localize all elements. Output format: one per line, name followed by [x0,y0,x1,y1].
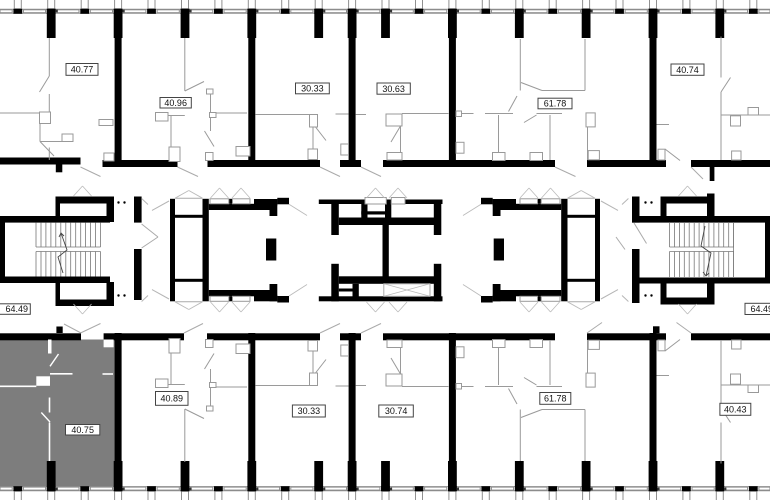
svg-text:61.78: 61.78 [544,394,567,404]
svg-text:30.74: 30.74 [385,406,408,416]
svg-text:40.74: 40.74 [676,65,699,75]
svg-text:30.63: 30.63 [382,84,405,94]
svg-text:64.49: 64.49 [5,304,28,314]
svg-text:40.43: 40.43 [724,405,747,415]
svg-text:40.77: 40.77 [71,65,94,75]
svg-text:40.96: 40.96 [164,98,187,108]
svg-text:40.89: 40.89 [161,394,184,404]
svg-text:40.75: 40.75 [71,425,94,435]
svg-text:64.49: 64.49 [751,304,770,314]
svg-text:30.33: 30.33 [301,84,324,94]
svg-text:61.78: 61.78 [544,99,567,109]
svg-text:30.33: 30.33 [298,406,321,416]
